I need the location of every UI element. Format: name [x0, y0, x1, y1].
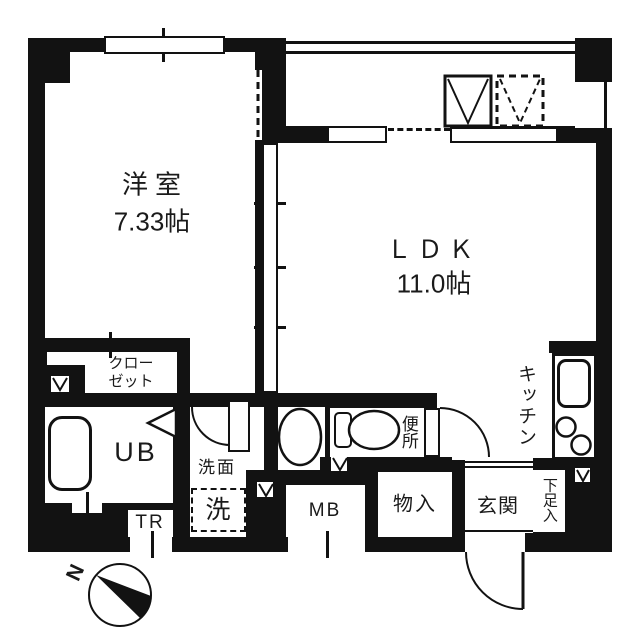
entrance-agarikamachi-line	[465, 530, 533, 532]
toilet-door-leaf	[424, 408, 440, 457]
ldk-balcony-window	[327, 126, 387, 143]
bathtub	[48, 416, 92, 491]
entrance-label: 玄関	[477, 497, 519, 518]
western-room-label: 洋室	[122, 171, 188, 198]
kitchen-label: キッチン	[515, 364, 535, 448]
storage-label: 物入	[393, 495, 437, 516]
kitchen-sink	[557, 359, 591, 408]
closet-door-tick	[109, 332, 112, 358]
western-room-size: 7.33帖	[114, 208, 191, 235]
floorplan-canvas: 洋室 7.33帖 ＬＤＫ 11.0帖 クロー ゼット UB 洗面 洗 TR MB…	[0, 0, 640, 640]
trunk-room-label: TR	[135, 513, 164, 533]
entrance-step-line	[465, 466, 533, 468]
balcony-railing-line	[286, 51, 575, 54]
entrance-step-line	[465, 461, 533, 463]
washroom-south-wall	[246, 470, 286, 537]
bath-window-tick	[86, 492, 89, 518]
basin-floor	[278, 407, 325, 470]
toilet-tank	[334, 412, 352, 448]
unit-bath-label: UB	[114, 438, 158, 466]
closet-label-line1: クロー	[108, 356, 153, 372]
meter-box-label: MB	[309, 501, 342, 521]
entrance-door-arc	[466, 552, 523, 609]
kitchen-counter-cap-wall	[549, 341, 597, 353]
washing-machine-label: 洗	[205, 497, 230, 523]
shoe-cabinet-label: 下足入	[541, 478, 557, 523]
closet-label-line2: ゼット	[108, 374, 153, 390]
toilet-label: 便所	[399, 415, 417, 449]
ldk-balcony-window	[450, 127, 558, 143]
washroom-door-leaf	[228, 400, 250, 452]
closet-wall-chunk	[45, 365, 85, 397]
ldk-size: 11.0帖	[397, 270, 472, 297]
western-room-floor-notch	[190, 338, 255, 393]
balcony-edge-line	[604, 82, 607, 128]
western-room-window	[104, 36, 225, 54]
ldk-label: ＬＤＫ	[386, 237, 479, 263]
balcony-floor	[286, 55, 575, 126]
meter-window-tick	[326, 531, 329, 558]
partition-dashed-strip	[254, 70, 262, 140]
balcony-railing-line	[286, 41, 575, 44]
compass-north-label: N	[63, 561, 89, 584]
entrance-jamb-wall	[525, 533, 533, 552]
sliding-door-track	[262, 143, 278, 393]
compass-north-symbol	[89, 564, 151, 626]
trunk-window-tick	[151, 531, 154, 558]
ldk-balcony-dashed-opening	[388, 127, 450, 131]
toilet-south-wall	[320, 457, 452, 472]
washroom-label: 洗面	[198, 459, 236, 477]
